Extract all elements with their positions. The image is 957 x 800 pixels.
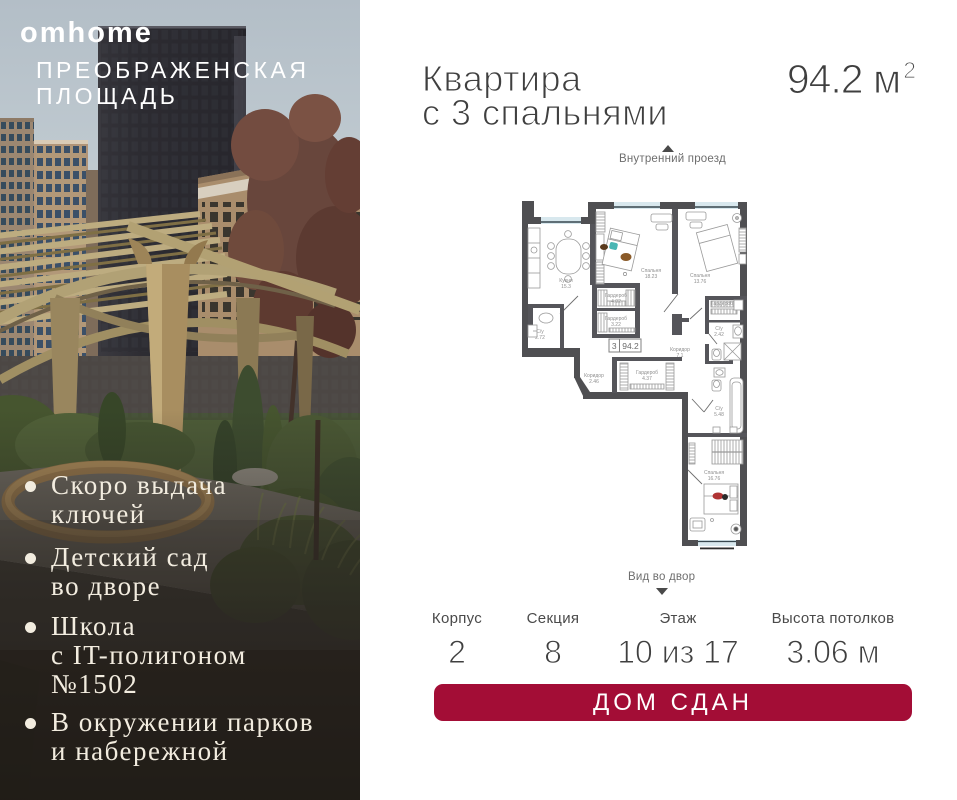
svg-text:3.22: 3.22 (611, 322, 621, 328)
svg-text:5.48: 5.48 (714, 412, 724, 418)
svg-text:15.3: 15.3 (561, 284, 571, 290)
svg-text:2.46: 2.46 (589, 379, 599, 385)
svg-text:16.76: 16.76 (708, 476, 721, 482)
svg-text:18.23: 18.23 (645, 274, 658, 280)
svg-text:7.1: 7.1 (677, 353, 684, 359)
svg-text:Гардероб: Гардероб (711, 301, 733, 307)
svg-text:13.76: 13.76 (694, 279, 707, 285)
svg-text:4.02: 4.02 (611, 299, 621, 305)
svg-text:3: 3 (612, 341, 617, 351)
svg-text:94.2: 94.2 (622, 341, 639, 351)
svg-text:2.42: 2.42 (714, 332, 724, 338)
svg-text:4.37: 4.37 (642, 376, 652, 382)
